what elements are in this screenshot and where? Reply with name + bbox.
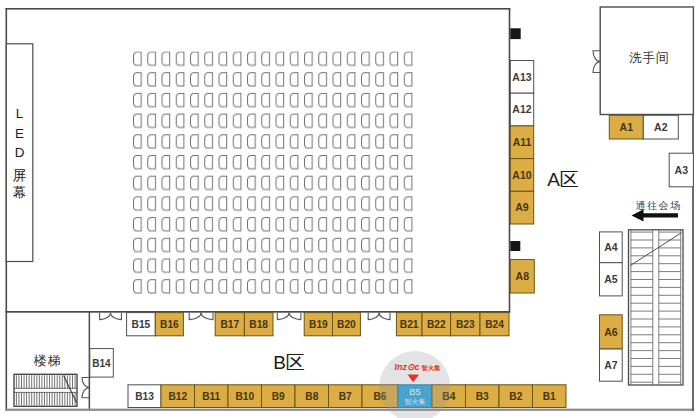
svg-text:A区: A区 [547, 169, 579, 190]
svg-text:ïnz⊙c: ïnz⊙c [395, 362, 420, 372]
svg-text:B20: B20 [337, 319, 356, 330]
svg-text:A6: A6 [604, 326, 618, 338]
svg-text:A1: A1 [620, 121, 634, 133]
svg-text:屏: 屏 [13, 168, 27, 183]
svg-text:B7: B7 [339, 391, 352, 402]
svg-text:B2: B2 [509, 391, 522, 402]
svg-text:B13: B13 [135, 391, 154, 402]
svg-text:B10: B10 [235, 391, 254, 402]
svg-text:B9: B9 [272, 391, 285, 402]
svg-text:B19: B19 [309, 319, 328, 330]
svg-text:洗手间: 洗手间 [629, 50, 669, 65]
svg-text:A5: A5 [604, 273, 618, 285]
svg-text:A12: A12 [512, 103, 531, 115]
svg-text:E: E [15, 126, 24, 141]
svg-text:B11: B11 [202, 391, 220, 402]
svg-text:B16: B16 [160, 319, 179, 330]
svg-text:A3: A3 [675, 164, 689, 176]
svg-text:B17: B17 [220, 319, 239, 330]
svg-text:A4: A4 [604, 241, 618, 253]
svg-text:B1: B1 [543, 391, 556, 402]
svg-text:A2: A2 [654, 121, 668, 133]
svg-text:幕: 幕 [13, 185, 27, 200]
svg-text:B24: B24 [485, 319, 504, 330]
svg-text:D: D [15, 145, 25, 160]
svg-text:B14: B14 [92, 358, 111, 369]
svg-text:B区: B区 [273, 352, 305, 373]
svg-text:A11: A11 [513, 136, 532, 148]
svg-text:A10: A10 [512, 169, 531, 181]
svg-text:L: L [16, 106, 24, 121]
svg-text:A7: A7 [604, 359, 618, 371]
svg-text:B23: B23 [456, 319, 475, 330]
svg-text:A8: A8 [516, 270, 530, 282]
svg-text:B18: B18 [249, 319, 268, 330]
svg-text:A13: A13 [512, 71, 531, 83]
svg-text:B3: B3 [476, 391, 489, 402]
svg-text:B22: B22 [427, 319, 446, 330]
svg-text:智火集: 智火集 [421, 364, 441, 372]
svg-text:B21: B21 [400, 319, 419, 330]
svg-text:B15: B15 [132, 319, 151, 330]
svg-text:B12: B12 [168, 391, 187, 402]
svg-text:通往会场: 通往会场 [636, 200, 682, 211]
svg-text:B8: B8 [305, 391, 318, 402]
svg-text:楼梯: 楼梯 [34, 353, 62, 368]
svg-text:A9: A9 [515, 201, 529, 213]
